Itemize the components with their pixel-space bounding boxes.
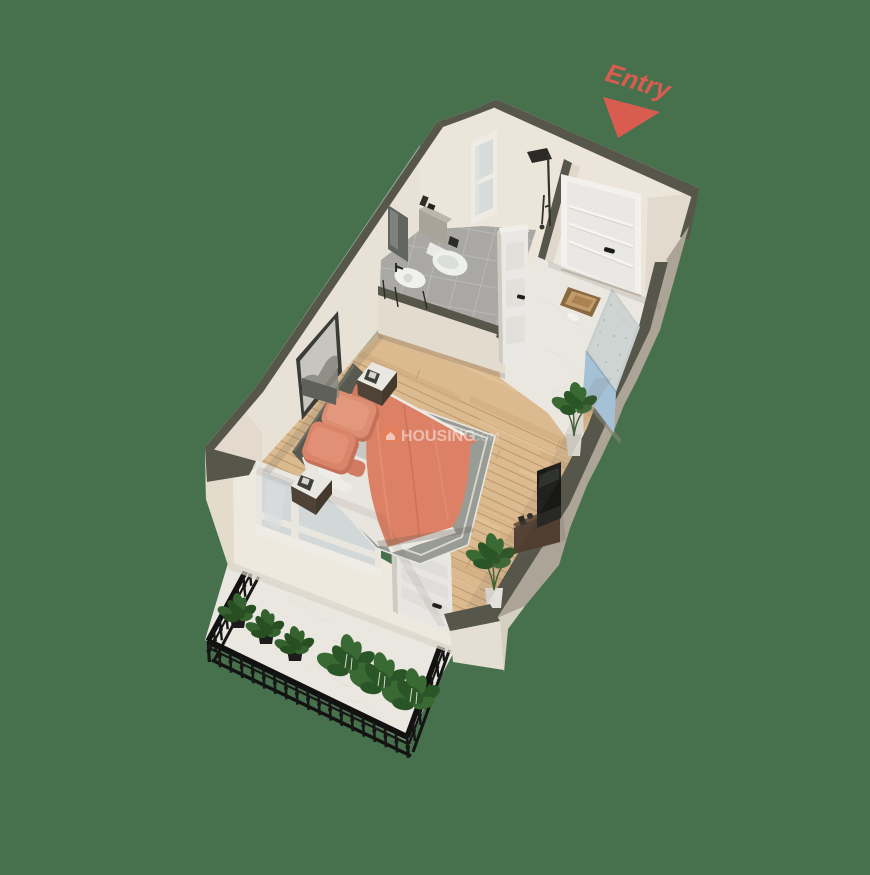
svg-text:HOUSING: HOUSING — [401, 428, 476, 445]
svg-text:.COM: .COM — [468, 430, 499, 444]
